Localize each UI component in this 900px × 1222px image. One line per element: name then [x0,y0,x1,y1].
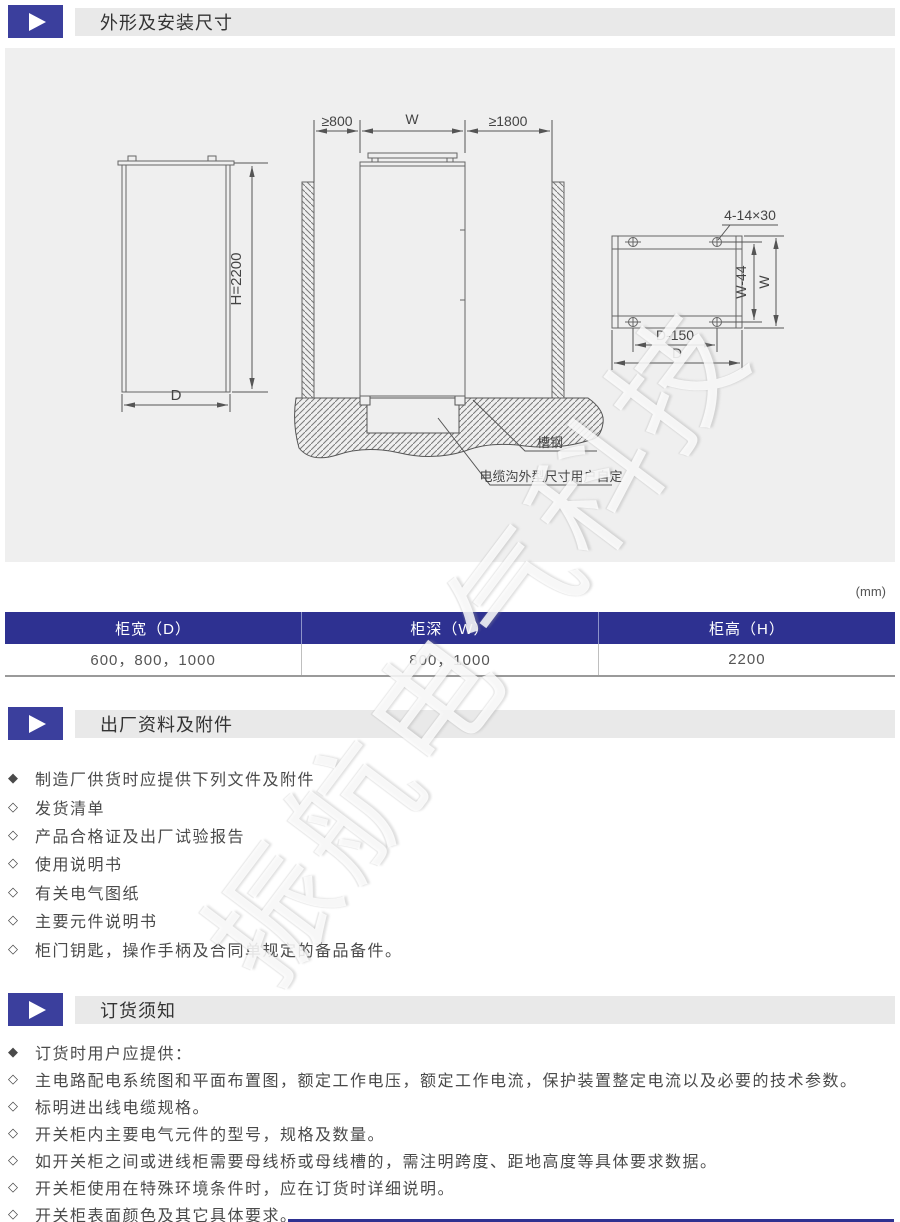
lifting-lug [128,156,136,161]
left-clearance-label: ≥800 [321,113,352,129]
diamond-bullet-icon: ◇ [8,1206,35,1222]
list-item-text: 有关电气图纸 [35,880,140,904]
diamond-bullet-icon: ◇ [8,912,35,928]
inner-width-label: W-44 [733,265,749,298]
depth-dimension-label: D [171,387,182,404]
unit-note: (mm) [856,584,886,599]
cabinet-front [122,165,230,392]
right-clearance-label: ≥1800 [489,113,528,129]
lifting-lug [208,156,216,161]
list-item: ◇ 开关柜使用在特殊环境条件时，应在订货时详细说明。 [8,1173,890,1200]
list-item-text: 订货时用户应提供： [35,1040,193,1064]
section-title-ordering: 订货须知 [100,997,176,1023]
diamond-bullet-icon: ◇ [8,1098,35,1114]
ordering-items-list: ◆ 订货时用户应提供： ◇ 主电路配电系统图和平面布置图，额定工作电压，额定工作… [8,1039,890,1222]
list-item-text: 主要元件说明书 [35,908,158,932]
cable-trench-label: 电缆沟外型尺寸用户自定 [479,469,622,484]
diamond-bullet-icon: ◆ [8,770,35,786]
plan-view: 4-14×30 W-44 W D-150 [612,207,784,370]
diamond-bullet-icon: ◇ [8,1179,35,1195]
list-item: ◇ 有关电气图纸 [8,878,890,906]
width-label: W [405,111,419,127]
list-item: ◇ 柜门钥匙，操作手柄及合同单规定的备品备件。 [8,934,890,962]
diamond-bullet-icon: ◇ [8,827,35,843]
section-title-bar: 外形及安装尺寸 [75,8,895,36]
right-wall [552,182,564,398]
triangle-icon [29,13,46,31]
dimension-table-head: 柜宽（D） 柜深（W） 柜高（H） [5,612,895,644]
section-title-bar: 出厂资料及附件 [75,710,895,738]
diamond-bullet-icon: ◇ [8,1071,35,1087]
triangle-icon [29,715,46,733]
height-dimension-label: H=2200 [228,253,245,306]
list-item: ◇ 主电路配电系统图和平面布置图，额定工作电压，额定工作电流，保护装置整定电流以… [8,1066,890,1093]
list-item-text: 如开关柜之间或进线柜需要母线桥或母线槽的，需注明跨度、距地高度等具体要求数据。 [35,1148,718,1172]
table-header-width: 柜宽（D） [5,612,302,644]
dimension-table-body: 600，800，1000 800，1000 2200 [5,644,895,676]
dimension-table: 柜宽（D） 柜深（W） 柜高（H） 600，800，1000 800，1000 … [5,612,895,677]
base-frame [612,236,742,328]
table-cell-depth: 800，1000 [302,644,599,676]
list-item-text: 使用说明书 [35,851,123,875]
diamond-bullet-icon: ◇ [8,884,35,900]
side-view: ≥800 W ≥1800 槽钢 电缆沟外型尺寸用户自定 [295,111,623,485]
list-item: ◇ 如开关柜之间或进线柜需要母线桥或母线槽的，需注明跨度、距地高度等具体要求数据… [8,1147,890,1174]
table-cell-width: 600，800，1000 [5,644,302,676]
list-item-text: 柜门钥匙，操作手柄及合同单规定的备品备件。 [35,937,403,961]
channel-steel-right [455,396,465,405]
play-icon [8,5,63,38]
top-plate [368,153,457,158]
table-header-height: 柜高（H） [598,612,895,644]
section-title-dimensions: 外形及安装尺寸 [100,9,233,35]
section-title-factory: 出厂资料及附件 [100,711,233,737]
play-icon [8,707,63,740]
plan-depth-label: D [672,345,682,361]
list-item: ◇ 开关柜内主要电气元件的型号，规格及数量。 [8,1120,890,1147]
section-title-bar: 订货须知 [75,996,895,1024]
table-header-row: 柜宽（D） 柜深（W） 柜高（H） [5,612,895,644]
list-item: ◇ 使用说明书 [8,849,890,877]
hole-spacing-label: D-150 [656,327,694,343]
diagram-panel: H=2200 D [5,48,895,562]
diamond-bullet-icon: ◇ [8,1152,35,1168]
leader-line-holes [718,225,730,240]
channel-steel-left [360,396,370,405]
triangle-icon [29,1001,46,1019]
left-wall [302,182,314,398]
diamond-bullet-icon: ◇ [8,941,35,957]
list-item: ◆ 制造厂供货时应提供下列文件及附件 [8,764,890,792]
list-item-text: 标明进出线电缆规格。 [35,1094,210,1118]
plate-foot [372,158,378,162]
list-item: ◇ 产品合格证及出厂试验报告 [8,821,890,849]
list-item-text: 开关柜内主要电气元件的型号，规格及数量。 [35,1121,385,1145]
section-header-factory: 出厂资料及附件 [0,707,900,743]
plate-foot [447,158,453,162]
cabinet-side [360,162,465,396]
diamond-bullet-icon: ◇ [8,1125,35,1141]
diamond-bullet-icon: ◇ [8,799,35,815]
list-item-text: 开关柜表面颜色及其它具体要求。 [35,1202,298,1222]
section-header-ordering: 订货须知 [0,993,900,1029]
section-header-dimensions: 外形及安装尺寸 [0,5,900,41]
table-cell-height: 2200 [598,644,895,676]
list-item: ◆ 订货时用户应提供： [8,1039,890,1066]
table-header-depth: 柜深（W） [302,612,599,644]
list-item: ◇ 标明进出线电缆规格。 [8,1093,890,1120]
diamond-bullet-icon: ◆ [8,1044,35,1060]
front-view: H=2200 D [118,156,268,412]
list-item-text: 发货清单 [35,795,105,819]
list-item-text: 制造厂供货时应提供下列文件及附件 [35,766,315,790]
list-item-text: 主电路配电系统图和平面布置图，额定工作电压，额定工作电流，保护装置整定电流以及必… [35,1067,858,1091]
list-item: ◇ 发货清单 [8,792,890,820]
catalog-page: 外形及安装尺寸 [0,0,900,1222]
factory-items-list: ◆ 制造厂供货时应提供下列文件及附件 ◇ 发货清单 ◇ 产品合格证及出厂试验报告… [8,764,890,963]
list-item: ◇ 主要元件说明书 [8,906,890,934]
mounting-holes-label: 4-14×30 [724,207,776,223]
list-item-text: 产品合格证及出厂试验报告 [35,823,245,847]
table-row: 600，800，1000 800，1000 2200 [5,644,895,676]
mounting-holes [625,237,725,327]
channel-steel-label: 槽钢 [537,435,563,450]
diamond-bullet-icon: ◇ [8,855,35,871]
list-item-text: 开关柜使用在特殊环境条件时，应在订货时详细说明。 [35,1175,455,1199]
play-icon [8,993,63,1026]
top-plate [118,161,234,165]
plan-width-label: W [756,275,772,289]
installation-diagram: H=2200 D [5,48,895,562]
